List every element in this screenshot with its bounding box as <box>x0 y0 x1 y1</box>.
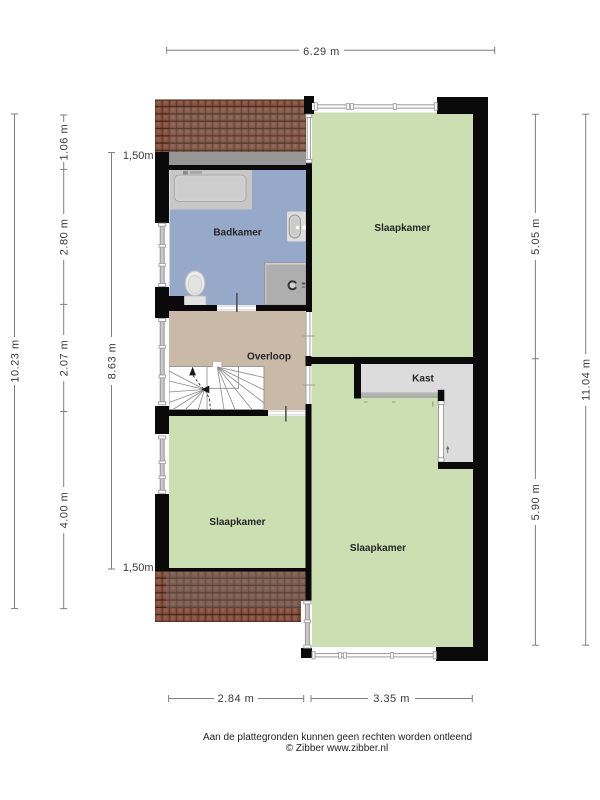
svg-text:8.63 m: 8.63 m <box>106 343 118 380</box>
svg-text:© Zibber www.zibber.nl: © Zibber www.zibber.nl <box>286 743 388 754</box>
svg-text:1.06 m: 1.06 m <box>59 124 71 161</box>
svg-text:Slaapkamer: Slaapkamer <box>350 543 406 554</box>
svg-text:2.07 m: 2.07 m <box>58 340 70 377</box>
svg-text:Slaapkamer: Slaapkamer <box>374 223 430 234</box>
svg-text:3.35 m: 3.35 m <box>373 693 410 705</box>
svg-text:Kast: Kast <box>412 374 434 385</box>
svg-text:1,50m: 1,50m <box>123 562 154 574</box>
svg-text:10.23 m: 10.23 m <box>9 339 21 382</box>
svg-text:5.90 m: 5.90 m <box>530 484 542 521</box>
svg-text:6.29 m: 6.29 m <box>303 46 340 58</box>
svg-text:2.80 m: 2.80 m <box>59 219 71 256</box>
svg-text:1,50m: 1,50m <box>123 150 154 162</box>
svg-text:Slaapkamer: Slaapkamer <box>209 517 265 528</box>
svg-text:2.84 m: 2.84 m <box>218 693 255 705</box>
svg-text:4.00 m: 4.00 m <box>58 492 70 529</box>
svg-text:Badkamer: Badkamer <box>213 228 261 239</box>
svg-text:Aan de plattegronden kunnen ge: Aan de plattegronden kunnen geen rechten… <box>203 732 472 743</box>
svg-text:11.04 m: 11.04 m <box>581 358 593 400</box>
svg-text:5.05 m: 5.05 m <box>530 218 542 255</box>
svg-text:Overloop: Overloop <box>247 352 291 363</box>
